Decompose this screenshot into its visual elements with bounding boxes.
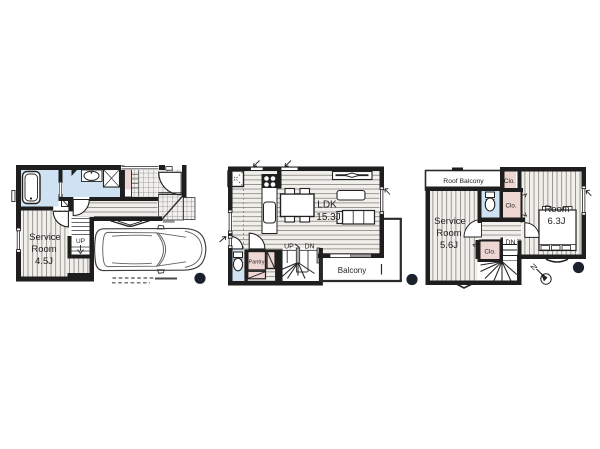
svg-text:Clo.: Clo.	[505, 203, 516, 210]
svg-text:6.3J: 6.3J	[548, 216, 566, 227]
svg-text:DN: DN	[505, 240, 515, 247]
svg-text:Clo.: Clo.	[484, 249, 496, 256]
svg-text:Room: Room	[544, 204, 569, 215]
svg-text:UP: UP	[284, 244, 294, 251]
svg-text:Clo.: Clo.	[504, 178, 515, 185]
svg-text:Balcony: Balcony	[338, 266, 366, 275]
svg-text:3F: 3F	[575, 265, 583, 272]
svg-text:15.3J: 15.3J	[316, 212, 340, 223]
svg-text:4.5J: 4.5J	[35, 256, 53, 267]
svg-text:LDK: LDK	[317, 200, 337, 211]
svg-text:5.6J: 5.6J	[440, 240, 458, 251]
svg-text:Service: Service	[434, 216, 466, 227]
svg-text:DN: DN	[304, 244, 314, 251]
svg-text:Room: Room	[31, 244, 56, 255]
svg-text:2F: 2F	[408, 277, 416, 284]
svg-text:Service: Service	[29, 232, 61, 243]
svg-text:Roof Balcony: Roof Balcony	[443, 178, 484, 185]
svg-text:1F: 1F	[196, 276, 204, 283]
svg-text:UP: UP	[76, 238, 85, 245]
svg-text:Room: Room	[436, 228, 461, 239]
svg-text:Pantry: Pantry	[249, 260, 265, 266]
